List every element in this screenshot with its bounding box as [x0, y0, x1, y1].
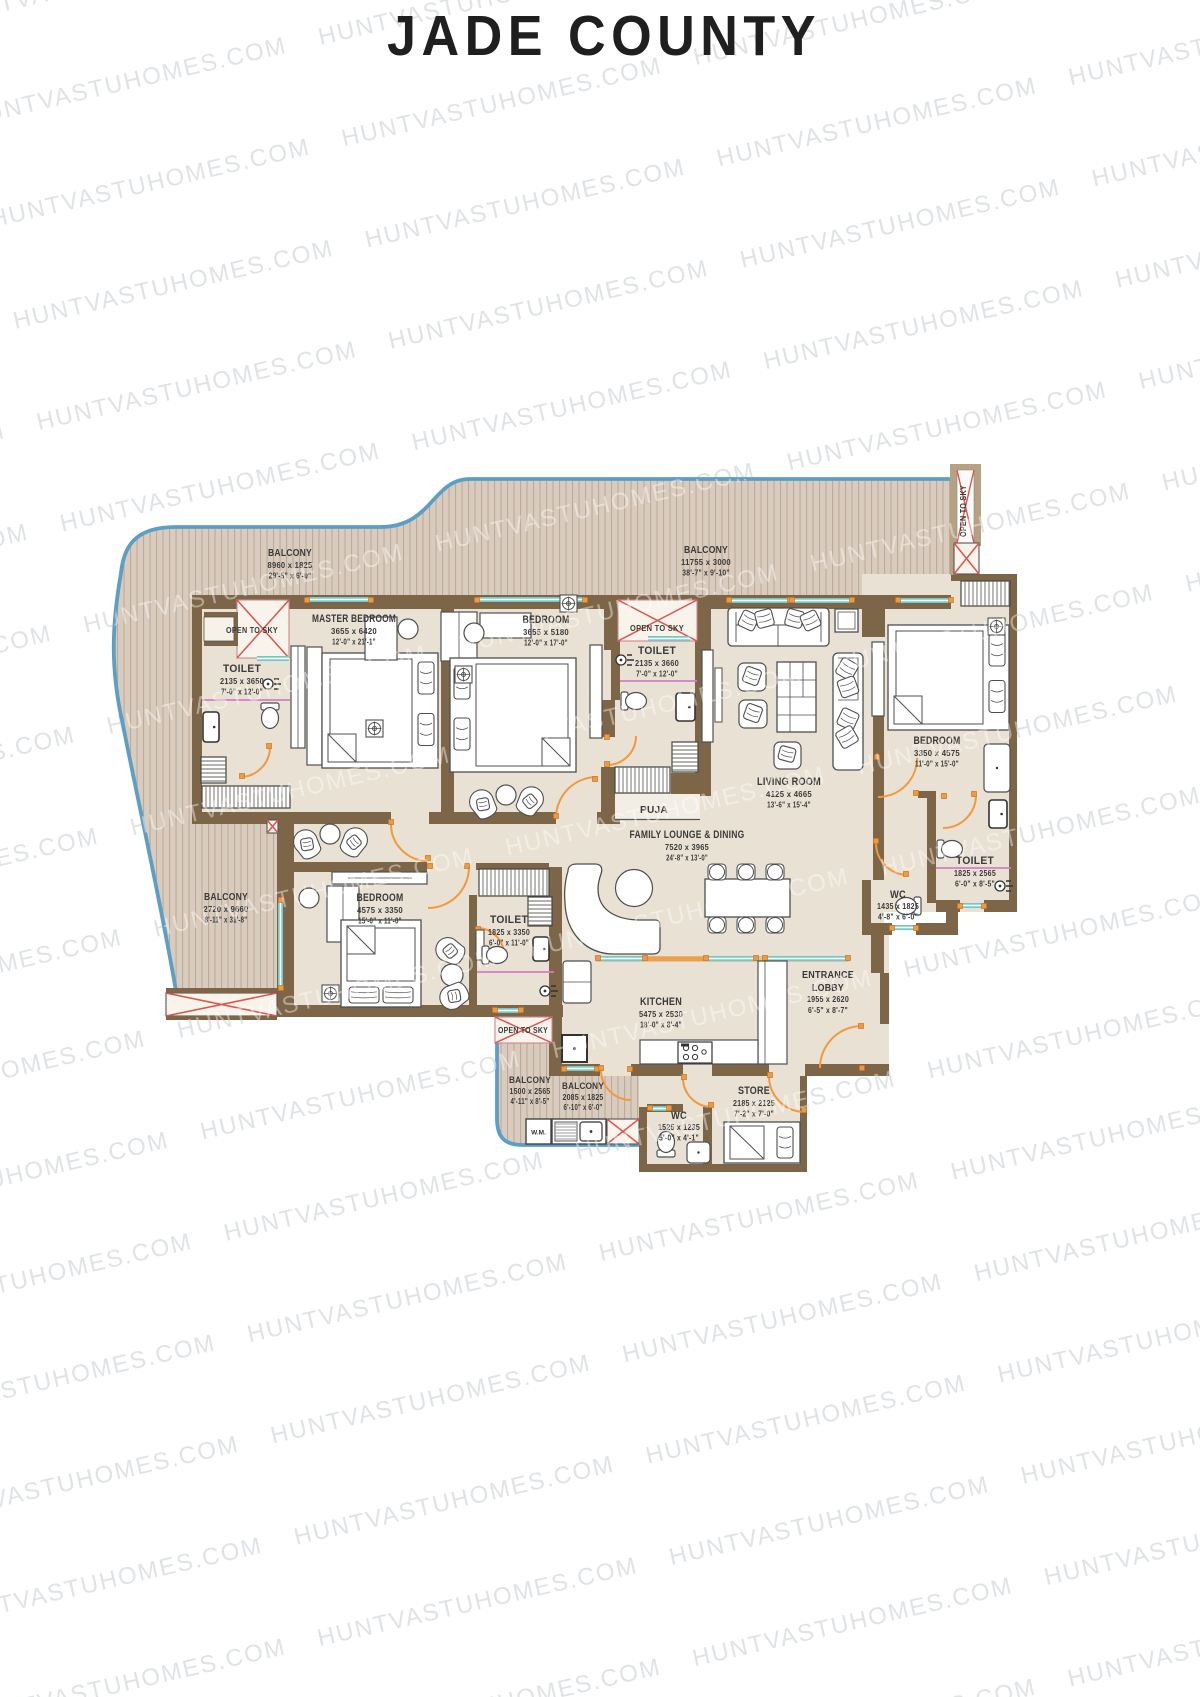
- svg-text:JADE COUNTY: JADE COUNTY: [387, 4, 821, 68]
- svg-text:TOILET: TOILET: [223, 663, 261, 675]
- svg-text:BALCONY: BALCONY: [268, 548, 312, 559]
- svg-text:6'-10" x 6'-0": 6'-10" x 6'-0": [564, 1102, 603, 1112]
- svg-text:6'-0" x 11'-0": 6'-0" x 11'-0": [489, 938, 529, 948]
- svg-text:OPEN TO SKY: OPEN TO SKY: [630, 624, 684, 633]
- svg-text:TOILET: TOILET: [490, 914, 528, 926]
- svg-text:1825 x 2565: 1825 x 2565: [954, 868, 996, 878]
- svg-text:13'-6" x 15'-4": 13'-6" x 15'-4": [767, 800, 811, 810]
- svg-text:TOILET: TOILET: [638, 645, 676, 657]
- svg-text:BALCONY: BALCONY: [684, 545, 728, 556]
- svg-text:BALCONY: BALCONY: [509, 1075, 551, 1086]
- svg-text:WC: WC: [890, 889, 906, 901]
- svg-text:6'-0" x 8'-5": 6'-0" x 8'-5": [955, 879, 995, 889]
- svg-text:1825 x 3350: 1825 x 3350: [488, 927, 530, 937]
- svg-text:4'-8" x 6'-0": 4'-8" x 6'-0": [878, 912, 918, 922]
- svg-text:2085 x 1825: 2085 x 1825: [563, 1092, 604, 1102]
- svg-text:11755 x 3000: 11755 x 3000: [681, 557, 731, 567]
- svg-text:7520 x 3965: 7520 x 3965: [665, 842, 709, 852]
- svg-text:OPEN TO SKY: OPEN TO SKY: [226, 626, 278, 635]
- svg-text:7'-0" x 12'-0": 7'-0" x 12'-0": [636, 669, 678, 679]
- svg-text:2135 x 3660: 2135 x 3660: [635, 658, 679, 668]
- svg-text:1500 x 2565: 1500 x 2565: [510, 1086, 551, 1096]
- svg-text:24'-8" x 13'-0": 24'-8" x 13'-0": [666, 853, 708, 863]
- svg-text:12'-0" x 21'-1": 12'-0" x 21'-1": [332, 637, 376, 647]
- svg-text:MASTER BEDROOM: MASTER BEDROOM: [312, 613, 396, 625]
- svg-text:KITCHEN: KITCHEN: [640, 996, 682, 1008]
- svg-text:OPEN TO SKY: OPEN TO SKY: [498, 1026, 548, 1035]
- svg-text:4'-11" x 8'-5": 4'-11" x 8'-5": [511, 1096, 550, 1106]
- svg-text:BALCONY: BALCONY: [562, 1081, 604, 1092]
- svg-text:15'-0" x 11'-0": 15'-0" x 11'-0": [358, 916, 402, 926]
- svg-text:3655 x 6420: 3655 x 6420: [331, 626, 377, 636]
- svg-text:W.M.: W.M.: [531, 1130, 546, 1137]
- svg-text:FAMILY LOUNGE & DINING: FAMILY LOUNGE & DINING: [630, 829, 745, 841]
- svg-text:6'-5" x 8'-7": 6'-5" x 8'-7": [808, 1005, 848, 1015]
- svg-text:1435 x 1825: 1435 x 1825: [877, 901, 919, 911]
- svg-text:4575 x 3350: 4575 x 3350: [357, 905, 403, 915]
